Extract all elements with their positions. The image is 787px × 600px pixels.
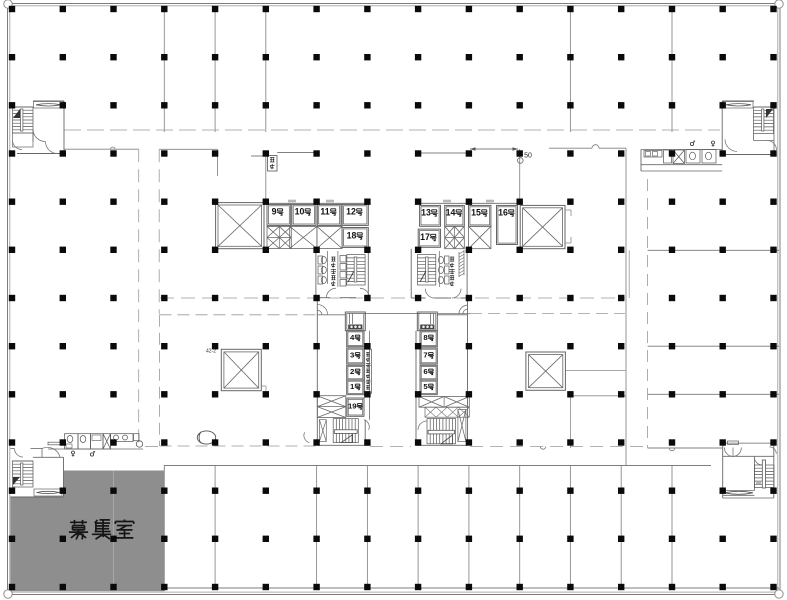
svg-text:15: 15 (471, 207, 481, 217)
svg-text:2: 2 (350, 367, 354, 376)
svg-text:7: 7 (423, 351, 427, 360)
svg-text:8: 8 (423, 333, 428, 342)
svg-text:4: 4 (350, 333, 355, 342)
svg-text:11: 11 (320, 206, 329, 216)
svg-text:17: 17 (420, 232, 430, 242)
svg-text:13: 13 (421, 207, 431, 217)
svg-text:10: 10 (295, 206, 305, 216)
svg-text:3: 3 (350, 351, 355, 360)
svg-text:18: 18 (347, 230, 357, 240)
svg-text:50: 50 (524, 153, 532, 160)
svg-text:9: 9 (272, 206, 277, 216)
svg-text:19: 19 (348, 402, 357, 411)
svg-text:5: 5 (423, 382, 428, 391)
svg-text:12: 12 (346, 206, 356, 216)
svg-text:1: 1 (350, 382, 355, 391)
svg-text:16: 16 (498, 207, 508, 217)
svg-text:14: 14 (446, 207, 456, 217)
svg-text:6: 6 (423, 367, 428, 376)
